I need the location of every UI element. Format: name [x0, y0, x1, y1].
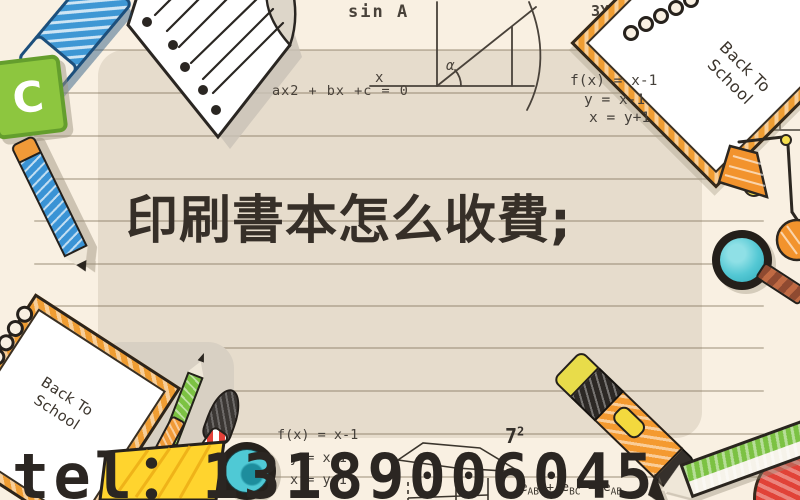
poster: C sin A x α ax2 + bx +c = 0 3X2+ Back To…	[0, 0, 800, 500]
tile-letter: C	[10, 71, 47, 123]
pencil-shaft	[19, 153, 88, 258]
spiral-coil-icon	[668, 0, 684, 16]
spiral-coil-icon	[623, 25, 639, 41]
fx-formula-1: f(x) = x-1	[570, 73, 657, 89]
ruled-line	[34, 263, 764, 265]
fx-formula-2: y = x-1	[584, 92, 645, 108]
spiral-coil-icon	[638, 16, 654, 32]
paper-sheet-icon	[95, 0, 320, 150]
quadratic-formula: ax2 + bx +c = 0	[272, 83, 409, 99]
blue-pencil-icon	[10, 135, 98, 279]
page-title: 印刷書本怎么收費;	[126, 178, 572, 253]
alpha-angle-label: α	[446, 58, 454, 74]
phone-number: tel：13189006045	[12, 426, 657, 500]
fx-formula-3: x = y+1	[589, 110, 650, 126]
sin-a-label: sin A	[348, 2, 409, 22]
ruled-line	[34, 305, 764, 307]
letter-c-tile: C	[0, 54, 68, 140]
magnifier-handle	[755, 262, 800, 306]
spiral-coil-icon	[653, 8, 669, 24]
